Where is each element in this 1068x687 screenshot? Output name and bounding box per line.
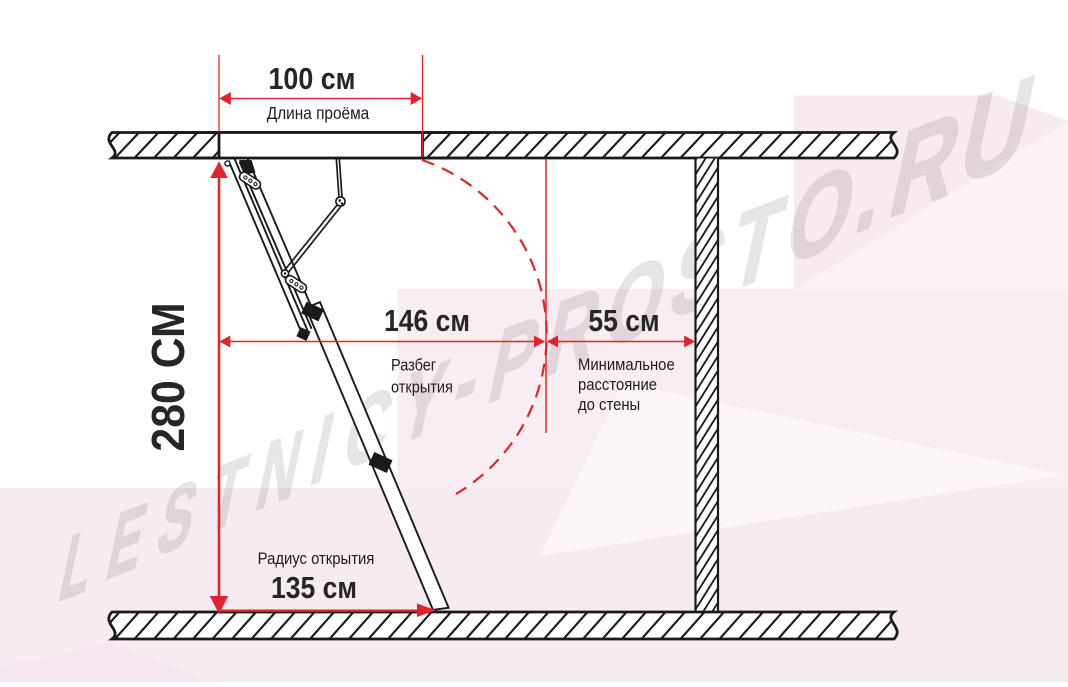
svg-text:Радиус открытия: Радиус открытия [258, 550, 375, 568]
svg-text:Длина проёма: Длина проёма [267, 104, 370, 123]
svg-text:55 см: 55 см [588, 304, 659, 338]
svg-text:135 см: 135 см [271, 571, 357, 605]
svg-text:280 СМ: 280 СМ [144, 302, 195, 451]
svg-text:100 см: 100 см [268, 62, 355, 96]
svg-text:до стены: до стены [578, 396, 640, 414]
svg-text:Минимальное: Минимальное [578, 356, 675, 374]
svg-text:расстояние: расстояние [578, 376, 657, 394]
svg-text:Разбег: Разбег [391, 357, 436, 375]
svg-text:146 см: 146 см [384, 304, 470, 338]
svg-text:открытия: открытия [391, 379, 453, 397]
